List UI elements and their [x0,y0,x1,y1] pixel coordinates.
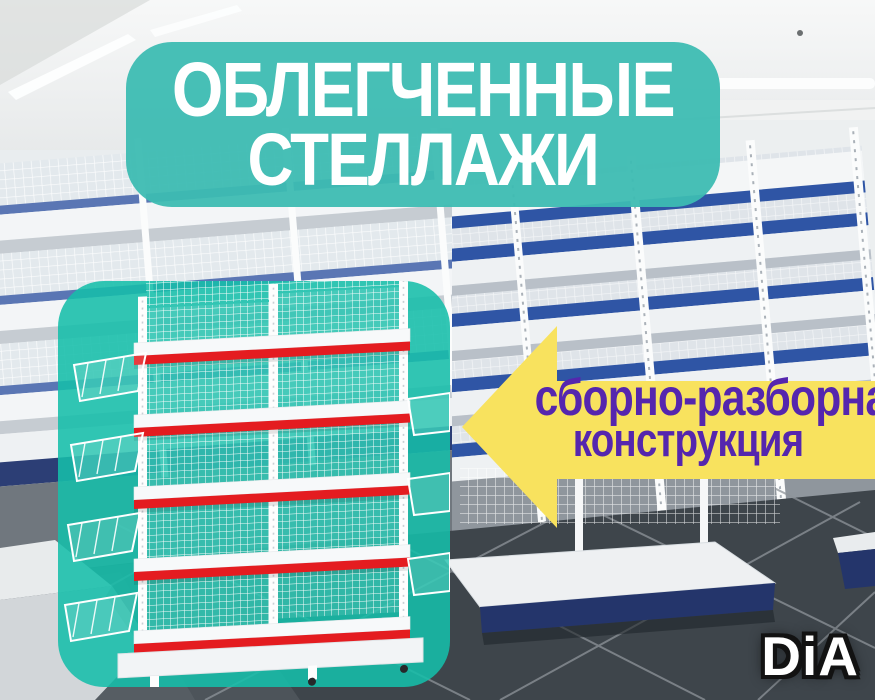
brand-logo: DiA [761,624,859,688]
callout-arrow: сборно-разборная конструкция [455,320,875,532]
shelving-unit-illustration [58,281,450,687]
headline-line-2: СТЕЛЛАЖИ [248,126,598,194]
callout-line-2: конструкция [535,412,842,467]
advert-poster: ОБЛЕГЧЕННЫЕ СТЕЛЛАЖИ [0,0,875,700]
ceiling-dot [797,30,803,36]
headline-line-1: ОБЛЕГЧЕННЫЕ [172,55,674,126]
product-card [58,281,450,687]
headline-banner: ОБЛЕГЧЕННЫЕ СТЕЛЛАЖИ [126,42,720,207]
